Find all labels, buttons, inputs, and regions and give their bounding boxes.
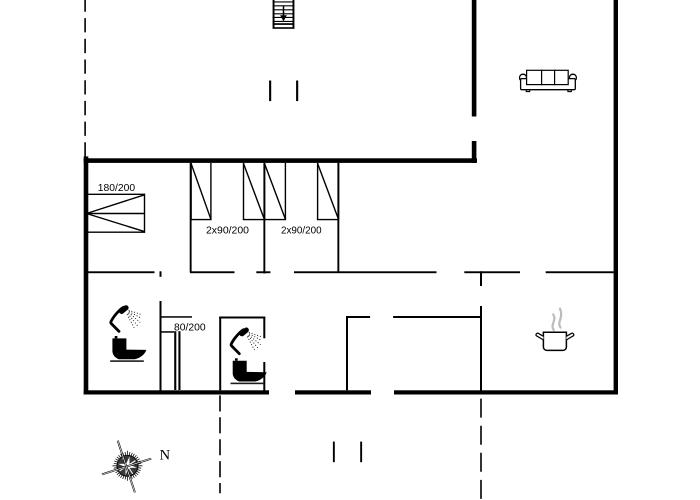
svg-text:N: N <box>160 447 171 463</box>
svg-text:2x90/200: 2x90/200 <box>206 225 249 237</box>
svg-text:2x90/200: 2x90/200 <box>281 225 322 237</box>
svg-text:80/200: 80/200 <box>174 322 206 334</box>
svg-text:180/200: 180/200 <box>98 182 135 194</box>
